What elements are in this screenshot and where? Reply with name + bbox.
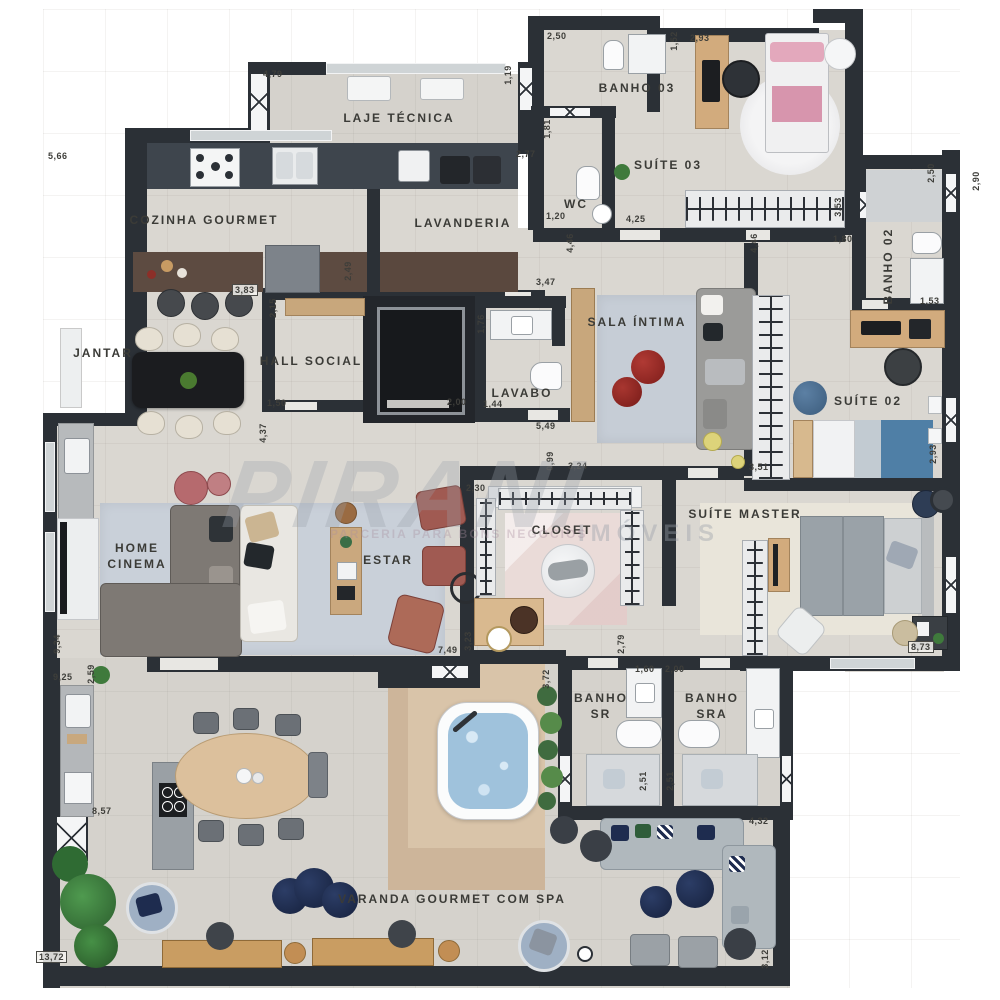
bar-counter — [58, 423, 94, 531]
dimension-label: 3,83 — [232, 284, 258, 296]
dark-pouf — [388, 920, 416, 948]
wood-stool — [438, 940, 460, 962]
dimension-label: 1,44 — [483, 399, 503, 409]
bed-master — [800, 516, 938, 616]
window-laje — [326, 63, 506, 74]
bed-suite02 — [793, 420, 933, 478]
floor-lamp — [703, 432, 722, 451]
cooktop — [190, 148, 240, 187]
elevator-door — [387, 400, 449, 408]
room-label-banho02: BANHO 02 — [880, 216, 896, 316]
red-pouf — [612, 377, 642, 407]
desk-chair-suite02 — [884, 348, 922, 386]
plant — [540, 712, 562, 734]
dimension-label: 0,99 — [545, 451, 555, 471]
dimension-label: 7,49 — [438, 645, 458, 655]
closet-pouf — [541, 544, 595, 598]
wall — [813, 9, 863, 23]
plant — [541, 766, 563, 788]
armchair-terracotta — [415, 484, 467, 531]
closet-rack-top — [498, 488, 632, 510]
dining-chair — [213, 411, 241, 435]
laundry-counter — [380, 252, 518, 292]
dimension-label: 2,77 — [516, 149, 536, 159]
dryer — [473, 156, 501, 184]
varanda-chair — [238, 824, 264, 846]
nightstand — [928, 396, 942, 414]
room-label-hall-social: HALL SOCIAL — [251, 353, 371, 369]
dimension-label: 2,90 — [971, 171, 981, 191]
room-label-suite02: SUÍTE 02 — [818, 393, 918, 409]
dimension-label: 2,93 — [690, 33, 710, 43]
bar-stool — [191, 292, 219, 320]
dimension-label: 2,79 — [616, 634, 626, 654]
dimension-label: 3,24 — [568, 461, 588, 471]
room-label-home-cinema: HOME CINEMA — [97, 540, 177, 572]
master-dresser — [768, 538, 790, 592]
door-banho-sr — [588, 658, 618, 668]
nightstand — [928, 428, 942, 444]
vanity-mirror — [486, 626, 512, 652]
wall — [662, 656, 674, 820]
rattan-chair — [126, 882, 178, 934]
entry-door — [285, 402, 317, 410]
bed-suite03 — [765, 33, 829, 153]
wall — [531, 16, 651, 30]
tv — [60, 522, 67, 614]
plant — [538, 740, 558, 760]
desk-chair-suite03 — [722, 60, 760, 98]
window — [548, 106, 592, 118]
varanda-counter — [60, 685, 94, 817]
wood-bench — [312, 938, 434, 966]
door-suite03 — [620, 230, 660, 240]
dimension-label: 3,12 — [760, 949, 770, 969]
dimension-label: 4,25 — [626, 214, 646, 224]
dimension-label: 1,52 — [669, 31, 679, 51]
window-cozinha — [190, 130, 332, 141]
dimension-label: 4,46 — [749, 233, 759, 253]
dark-pouf — [550, 816, 578, 844]
dimension-label: 1,80 — [833, 234, 853, 244]
window-estar — [430, 664, 470, 680]
small-table — [577, 946, 593, 962]
room-label-laje: LAJE TÉCNICA — [329, 110, 469, 126]
floor-plan: COZINHA GOURMET LAJE TÉCNICA LAVANDERIA … — [0, 0, 1000, 1000]
dining-chair — [173, 323, 201, 347]
dimension-label: 1,19 — [503, 65, 513, 85]
varanda-chair — [275, 714, 301, 736]
dimension-label: 4,37 — [258, 423, 268, 443]
ac-unit — [420, 78, 464, 100]
vanity-banho-sr — [626, 668, 662, 718]
window — [45, 532, 55, 612]
plant-varanda — [60, 874, 116, 930]
room-label-closet: CLOSET — [512, 522, 612, 538]
dimension-label: 13,72 — [36, 951, 67, 963]
kitchen-sink — [272, 147, 318, 185]
bar-stool — [157, 289, 185, 317]
vanity-banho-sra — [746, 668, 780, 758]
red-pouf — [631, 350, 665, 384]
closet-rack-left — [476, 498, 496, 596]
wood-stool — [284, 942, 306, 964]
dimension-label: 1,50 — [267, 398, 287, 408]
dimension-label: 9,25 — [53, 672, 73, 682]
dimension-label: 2,30 — [466, 483, 486, 493]
room-label-sala-intima: SALA ÍNTIMA — [572, 314, 702, 330]
washer — [440, 156, 470, 184]
hall-console — [285, 298, 365, 316]
banho02-toilet — [912, 232, 942, 254]
dimension-label: 5,49 — [536, 421, 556, 431]
dimension-label: 3,47 — [536, 277, 556, 287]
window — [249, 72, 269, 132]
dimension-label: 3,23 — [463, 631, 473, 651]
dimension-label: 2,59 — [86, 664, 96, 684]
dimension-label: 4,79 — [263, 69, 283, 79]
window-suite02 — [944, 396, 958, 444]
dining-chair — [137, 411, 165, 435]
door-varanda — [160, 658, 218, 670]
ac-unit — [347, 76, 391, 101]
room-label-estar: ESTAR — [348, 552, 428, 568]
gray-ottoman — [630, 934, 670, 966]
door-suite-master — [688, 468, 718, 478]
window — [45, 442, 55, 512]
banho03-toilet — [603, 40, 624, 70]
shower-banho-sra — [682, 754, 758, 806]
ledge-panel — [60, 328, 82, 408]
dimension-label: 2,49 — [343, 261, 353, 281]
room-label-suite03: SUÍTE 03 — [618, 157, 718, 173]
dark-pouf — [580, 830, 612, 862]
dimension-label: 9,34 — [52, 634, 62, 654]
room-label-lavanderia: LAVANDERIA — [398, 215, 528, 231]
dimension-label: 2,00 — [665, 664, 685, 674]
dimension-label: 4,32 — [749, 816, 769, 826]
room-label-cozinha: COZINHA GOURMET — [119, 212, 289, 228]
dark-pouf — [206, 922, 234, 950]
wall — [852, 160, 866, 310]
plant — [537, 686, 557, 706]
dining-chair — [211, 327, 239, 351]
coffee-table — [330, 527, 362, 615]
wardrobe-suite02 — [752, 295, 790, 480]
dimension-label: 2,93 — [928, 444, 938, 464]
wall — [43, 966, 790, 986]
dimension-label: 2,00 — [447, 397, 467, 407]
laundry-sink — [398, 150, 430, 182]
white-sofa — [240, 505, 298, 642]
kitchen-appliance — [265, 245, 320, 293]
room-label-varanda: VARANDA GOURMET COM SPA — [322, 891, 582, 907]
dimension-label: 1,81 — [542, 119, 552, 139]
dimension-label: 3,72 — [541, 669, 551, 689]
wardrobe-suite03 — [685, 190, 845, 228]
tub-banho-sra — [678, 720, 720, 748]
side-table — [207, 472, 231, 496]
dimension-label: 2,15 — [268, 298, 278, 318]
dimension-label: 3,51 — [749, 462, 769, 472]
shower-banho-sr — [586, 754, 660, 806]
ball-chair — [824, 38, 856, 70]
varanda-bench-chair — [308, 752, 328, 798]
tub-banho-sr — [616, 720, 662, 748]
room-label-banho03: BANHO 03 — [587, 80, 687, 96]
window-suite-master — [830, 658, 915, 669]
dimension-label: 2,51 — [638, 771, 648, 791]
lamp-shade — [731, 455, 745, 469]
desk-suite02 — [850, 310, 945, 348]
wardrobe-master — [742, 540, 768, 656]
room-label-suite-master: SUÍTE MASTER — [675, 506, 815, 522]
varanda-chair — [193, 712, 219, 734]
dimension-label: 4,46 — [565, 233, 575, 253]
dimension-label: 1,20 — [546, 211, 566, 221]
wall — [533, 228, 845, 242]
room-label-wc: WC — [556, 196, 596, 212]
window-banho02 — [944, 172, 958, 214]
varanda-oval-table — [175, 733, 317, 819]
dimension-label: 2,50 — [547, 31, 567, 41]
dimension-label: 5,66 — [48, 151, 68, 161]
dining-table — [132, 352, 244, 408]
door-banho-sra — [700, 658, 730, 668]
dimension-label: 8,73 — [908, 641, 934, 653]
dimension-label: 2,51 — [665, 771, 675, 791]
wall — [552, 296, 565, 346]
dimension-label: 8,57 — [92, 806, 112, 816]
room-label-banho-sra: BANHO SRA — [681, 690, 743, 722]
room-label-jantar: JANTAR — [58, 345, 148, 361]
rattan-chair — [518, 920, 570, 972]
gray-ottoman — [678, 936, 718, 968]
varanda-chair — [278, 818, 304, 840]
vanity-chair — [510, 606, 538, 634]
side-clock-table — [930, 487, 956, 513]
dimension-label: 2,50 — [926, 163, 936, 183]
banho03-vanity — [628, 34, 666, 74]
varanda-chair — [233, 708, 259, 730]
dimension-label: 1,60 — [635, 664, 655, 674]
window-banho-sra — [780, 754, 793, 804]
wc-toilet — [576, 166, 600, 200]
wood-panel — [571, 288, 595, 422]
closet-rack-right — [620, 510, 644, 606]
spa-tub — [437, 702, 539, 820]
door-lavabo — [528, 410, 558, 420]
home-cinema-chaise — [100, 583, 242, 657]
sofa-sala-intima — [696, 288, 756, 450]
dimension-label: 1,53 — [920, 296, 940, 306]
plant — [538, 792, 556, 810]
dimension-label: 3,53 — [833, 197, 843, 217]
side-table — [174, 471, 208, 505]
dimension-label: 1,76 — [476, 314, 486, 334]
room-label-banho-sr: BANHO SR — [571, 690, 631, 722]
wall — [662, 466, 676, 606]
dining-chair — [175, 415, 203, 439]
plant-varanda — [74, 924, 118, 968]
lavabo-vanity — [490, 310, 552, 340]
window-suite-master-right — [944, 555, 958, 615]
varanda-chair — [198, 820, 224, 842]
navy-pouf — [676, 870, 714, 908]
rattan-pouf — [335, 502, 357, 524]
dark-pouf — [724, 928, 756, 960]
navy-pouf — [640, 886, 672, 918]
